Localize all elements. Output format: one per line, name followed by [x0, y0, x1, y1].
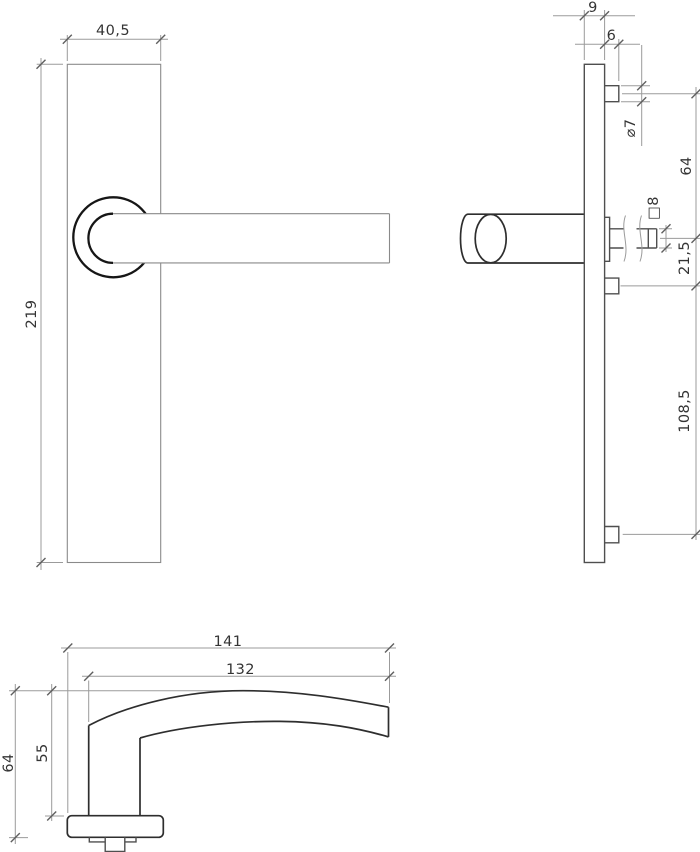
side-spindle-bar	[610, 229, 657, 248]
side-screw-boss-bottom	[605, 527, 619, 543]
dim-grip-depth: 55	[36, 743, 51, 762]
dim-spindle-to-screw: 21,5	[677, 241, 692, 275]
side-plate-outline	[584, 64, 604, 562]
dim-handle-length: 141	[214, 635, 243, 650]
front-lever-body	[88, 214, 389, 263]
dim-spindle-square: □8	[647, 196, 662, 220]
bottom-view	[9, 644, 396, 852]
bottom-handle-inner-curve	[140, 721, 389, 738]
bottom-plate-section	[67, 816, 163, 838]
dim-boss-height: 6	[607, 29, 617, 44]
bottom-handle-outer-curve	[89, 691, 389, 726]
dim-plate-width: 40,5	[96, 23, 130, 38]
dim-grip-length: 132	[226, 662, 255, 677]
front-view	[37, 35, 390, 570]
front-dimension-lines	[37, 35, 168, 570]
side-view	[461, 10, 700, 563]
technical-drawing	[0, 0, 700, 852]
bottom-spindle-fill	[105, 838, 125, 851]
bottom-handle-neck	[89, 726, 140, 816]
dim-screw-spacing: 108,5	[677, 389, 692, 433]
side-dimension-lines	[553, 10, 700, 540]
front-tick-marks	[37, 35, 166, 567]
dim-plate-thickness: 9	[588, 0, 598, 15]
side-screw-boss-middle	[605, 278, 619, 294]
technical-drawing-canvas: 40,5 219 9 6 ⌀7 64 □8 21,5 108,5 141 132…	[0, 0, 700, 852]
side-tick-marks	[580, 11, 700, 539]
dim-screw-to-spindle: 64	[680, 156, 695, 175]
side-spindle-hub	[605, 217, 610, 261]
side-spindle-break-lines	[624, 216, 642, 262]
bottom-dimension-lines	[9, 648, 396, 844]
dim-plate-height: 219	[24, 299, 39, 328]
side-grip-end-ellipse	[475, 214, 506, 262]
dim-screw-diameter: ⌀7	[623, 118, 638, 137]
front-plate-outline	[67, 64, 160, 562]
side-screw-boss-top	[605, 86, 619, 102]
dim-handle-depth: 64	[2, 753, 17, 772]
